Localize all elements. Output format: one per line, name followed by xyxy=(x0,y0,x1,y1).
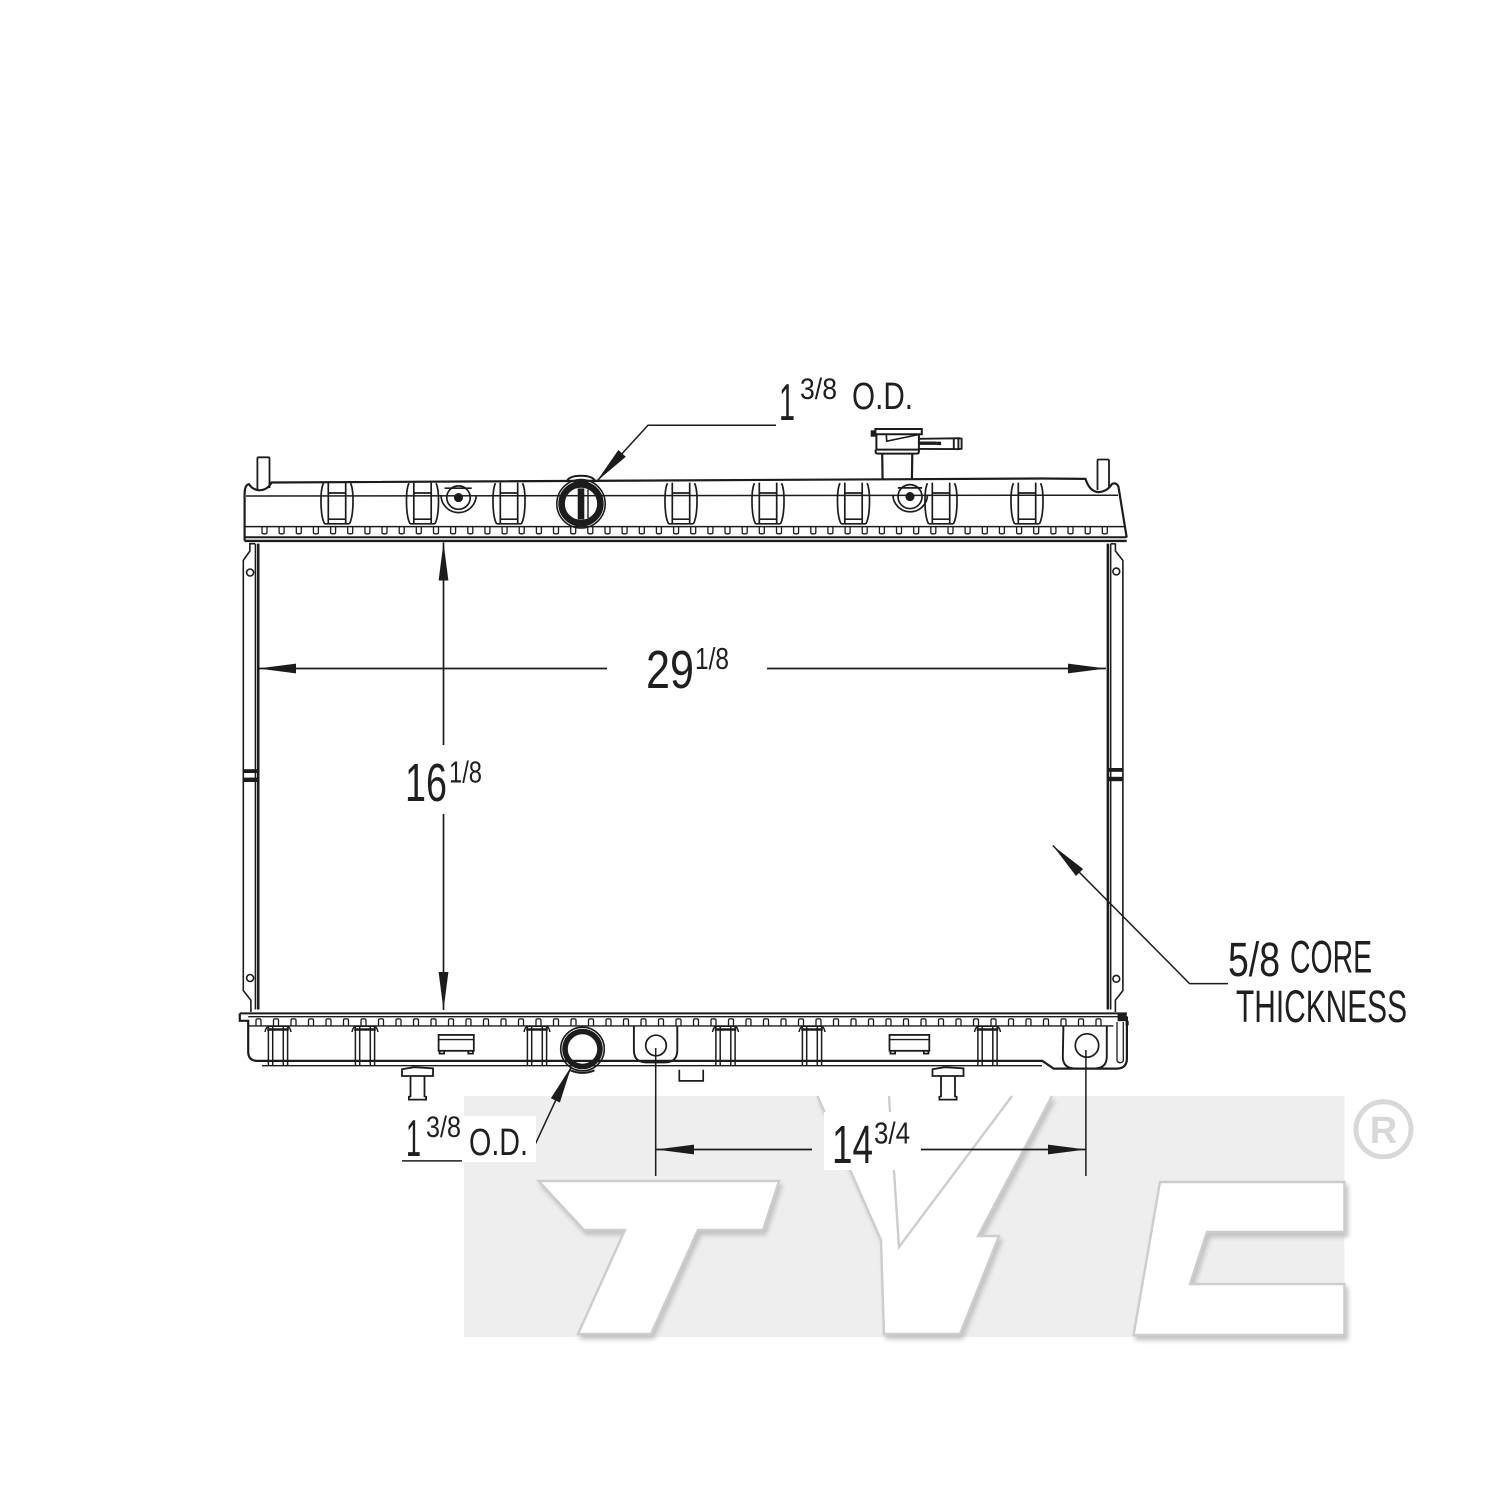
svg-text:16: 16 xyxy=(405,753,447,813)
svg-text:O.D.: O.D. xyxy=(852,376,913,418)
svg-text:1/8: 1/8 xyxy=(449,755,482,790)
svg-text:3/4: 3/4 xyxy=(874,1116,910,1151)
svg-text:THICKNESS: THICKNESS xyxy=(1236,981,1407,1032)
svg-text:3/8: 3/8 xyxy=(426,1111,461,1144)
svg-text:O.D.: O.D. xyxy=(469,1122,528,1164)
svg-text:5/8: 5/8 xyxy=(1228,934,1280,987)
svg-text:1: 1 xyxy=(779,374,795,432)
svg-text:29: 29 xyxy=(646,640,694,700)
svg-text:R: R xyxy=(1370,1110,1397,1152)
svg-text:CORE: CORE xyxy=(1290,932,1372,983)
svg-text:1/8: 1/8 xyxy=(695,641,729,676)
svg-text:14: 14 xyxy=(832,1115,873,1175)
svg-text:1: 1 xyxy=(406,1110,421,1168)
svg-text:3/8: 3/8 xyxy=(800,373,837,406)
